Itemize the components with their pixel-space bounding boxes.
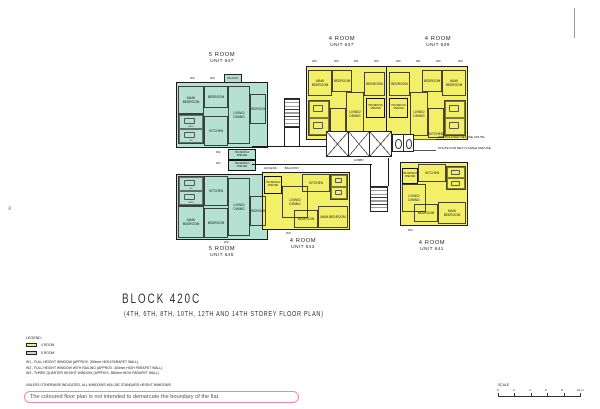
unit-title-643: 4 ROOM UNIT 643 — [273, 238, 333, 251]
floor-plan-page: 91 5 ROOM UNIT 647 4 ROOM UNIT 637 4 ROO… — [0, 0, 600, 409]
room-living-dining: LIVING/ DINING — [228, 178, 250, 236]
wall-line — [299, 128, 300, 146]
room-household-shelter: HOUSEHOLD SHELTER — [264, 176, 282, 194]
legend-swatch-4room — [26, 343, 37, 347]
room-bedroom: BEDROOM — [204, 86, 228, 108]
room-household-shelter: HOUSEHOLD SHELTER — [402, 168, 418, 184]
window-mark-w3: W3 — [436, 60, 441, 63]
room-bedroom: BEDROOM — [414, 204, 438, 222]
room-household-shelter: HOUSEHOLD SHELTER — [228, 160, 256, 171]
room-bath — [331, 175, 347, 187]
leader-line — [414, 150, 436, 151]
room-household-shelter: HOUSEHOLD SHELTER — [366, 98, 385, 118]
room-wc — [445, 118, 465, 135]
corridor-edge — [252, 164, 372, 165]
legend-heading: LEGEND: — [26, 336, 42, 340]
balcony-647: BALCONY — [224, 74, 242, 83]
room-bedroom: BEDROOM — [389, 72, 410, 96]
recyclable-chute-icon — [404, 135, 414, 151]
wall-line — [388, 158, 389, 186]
room-kitchen: KITCHEN — [428, 108, 444, 138]
room-main-bedroom: MAIN BEDROOM — [442, 70, 466, 96]
scale-tick — [547, 393, 548, 397]
unit-title-639: 4 ROOM UNIT 639 — [408, 36, 468, 49]
corridor-edge — [252, 146, 326, 147]
room-main-bedroom: MAIN BEDROOM — [318, 206, 348, 228]
room-bedroom: BEDROOM — [294, 210, 318, 228]
scale-tick — [531, 393, 532, 397]
disclaimer-text: The coloured floor plan is not intended … — [30, 394, 220, 400]
bathrooms — [330, 174, 348, 200]
scale-bar — [498, 396, 580, 397]
window-mark-w3: W3 — [396, 60, 401, 63]
window-mark-w3: W3 — [224, 241, 229, 244]
staircase — [284, 98, 300, 128]
room-living-dining: LIVING/ DINING — [346, 92, 364, 136]
party-wall — [386, 67, 387, 139]
window-mark-w1: W1 — [354, 60, 359, 63]
room-kitchen: KITCHEN — [418, 164, 446, 182]
window-mark-w3: W3 — [286, 232, 291, 235]
unit-title-641: 4 ROOM UNIT 641 — [402, 240, 462, 253]
scale-label: SCALE — [498, 383, 509, 387]
window-mark-w3: W3 — [374, 60, 379, 63]
legend-label-4room: 4 ROOM — [41, 343, 54, 347]
scale-tick — [514, 393, 515, 397]
lift-icon — [349, 132, 371, 156]
refuse-chute-icon — [393, 135, 404, 151]
room-wc: WC — [179, 129, 203, 143]
note-w3: W3 - THREE QUARTER HEIGHT WINDOW (APPROX… — [26, 371, 159, 375]
room-household-shelter: HOUSEHOLD SHELTER — [389, 98, 408, 118]
note-w2: W2 - FULL HEIGHT WINDOW WITH RAILING (AP… — [26, 366, 162, 370]
room-bath — [445, 101, 465, 118]
room-bath — [309, 101, 329, 118]
window-mark-w3: W3 — [312, 60, 317, 63]
staircase — [370, 186, 388, 212]
room-household-shelter: HOUSEHOLD SHELTER — [228, 149, 256, 160]
unit-title-647: 5 ROOM UNIT 647 — [192, 52, 252, 65]
lobby-label: LOBBY — [326, 158, 392, 162]
leader-line — [414, 139, 436, 140]
access-balcony-label: ACCESS BALCONY — [264, 166, 299, 170]
window-mark-w3: W3 — [334, 60, 339, 63]
legend-label-5room: 5 ROOM — [41, 351, 54, 355]
room-bedroom: BEDROOM — [250, 94, 266, 124]
window-mark-w3: W3 — [458, 60, 463, 63]
bathrooms: WC BATH — [178, 176, 204, 206]
refuse-chute-annotation: CENTRALISED REFUSE CHUTE — [438, 136, 485, 139]
scale-tick — [564, 393, 565, 397]
room-main-bedroom: MAIN BEDROOM — [438, 202, 466, 224]
unit-title-637: 4 ROOM UNIT 637 — [312, 36, 372, 49]
unit-title-645: 5 ROOM UNIT 645 — [192, 246, 252, 259]
room-bedroom: BEDROOM — [422, 70, 442, 92]
bathrooms: BATH WC — [178, 114, 204, 144]
room-bedroom: BEDROOM — [250, 196, 266, 226]
room-kitchen: KITCHEN — [204, 116, 228, 146]
room-main-bedroom: MAIN BEDROOM — [308, 70, 332, 96]
bathrooms — [444, 100, 466, 136]
note-general: UNLESS OTHERWISE INDICATED, ALL WINDOWS … — [26, 383, 171, 387]
window-mark-w2: W2 — [216, 151, 221, 154]
room-bedroom: BEDROOM — [332, 70, 352, 92]
page-title: BLOCK 420C — [122, 291, 201, 306]
room-main-bedroom: MAIN BEDROOM — [178, 86, 204, 114]
room-wc: WC — [179, 177, 203, 191]
lift-lobby — [326, 131, 392, 157]
scale-tick — [498, 393, 499, 397]
room-bath: BATH — [179, 115, 203, 129]
room-bath — [447, 167, 465, 178]
window-mark-w3: W3 — [408, 229, 413, 232]
wall-line — [284, 128, 285, 146]
window-mark-w3: W3 — [190, 77, 195, 80]
room-bath: BATH — [179, 191, 203, 205]
scale-tick — [580, 393, 581, 397]
page-number: 91 — [8, 206, 12, 210]
room-bedroom: BEDROOM — [364, 72, 385, 96]
window-mark-w3: W3 — [210, 77, 215, 80]
legend-swatch-5room — [26, 351, 37, 355]
disclaimer-box: The coloured floor plan is not intended … — [24, 391, 299, 403]
wall-line — [370, 165, 371, 186]
bathrooms — [446, 166, 466, 190]
room-wc — [447, 178, 465, 189]
room-kitchen: KITCHEN — [204, 176, 228, 206]
scale-tick-label: 8 — [561, 389, 563, 392]
room-living-dining: LIVING/ DINING — [410, 92, 428, 136]
note-w1: W1 - FULL HEIGHT WINDOW (APPROX. 300mm H… — [26, 360, 138, 364]
refuse-chutes — [392, 134, 414, 152]
room-living-dining: LIVING/ DINING — [228, 86, 250, 144]
room-bedroom: BEDROOM — [204, 208, 228, 238]
window-mark-w1: W1 — [416, 60, 421, 63]
recyclable-chute-annotation: CHUTE FOR RECYCLABLE REFUSE — [438, 147, 491, 150]
room-main-bedroom: MAIN BEDROOM — [178, 206, 204, 238]
window-mark-w2: W2 — [216, 162, 221, 165]
lift-icon — [370, 132, 391, 156]
room-wc — [331, 187, 347, 199]
lift-icon — [327, 132, 349, 156]
crop-mark — [574, 8, 575, 38]
page-subtitle: (4TH, 6TH, 8TH, 10TH, 12TH AND 14TH STOR… — [124, 311, 324, 318]
